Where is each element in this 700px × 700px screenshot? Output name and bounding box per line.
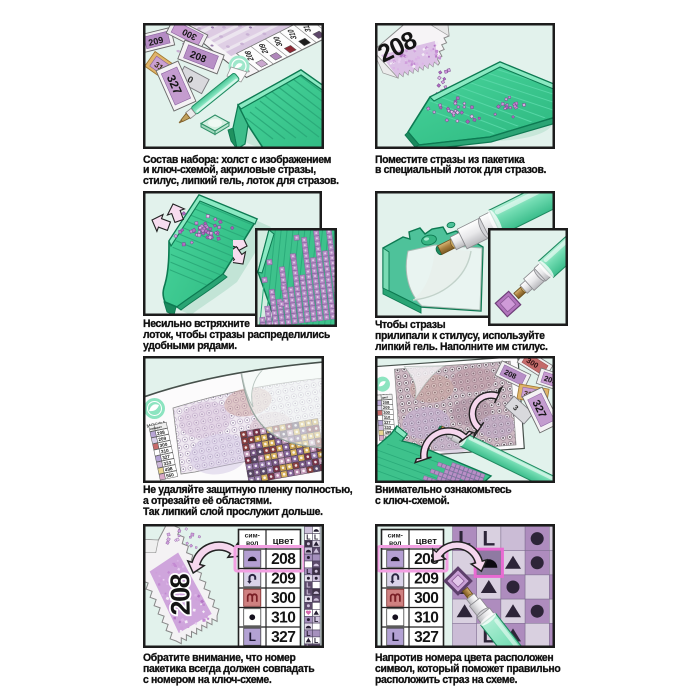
svg-text:L: L bbox=[392, 630, 399, 644]
svg-text:209: 209 bbox=[414, 571, 439, 588]
svg-text:310: 310 bbox=[271, 610, 295, 627]
svg-text:300: 300 bbox=[271, 590, 295, 607]
svg-text:327: 327 bbox=[414, 629, 438, 646]
svg-text:L: L bbox=[249, 630, 256, 644]
svg-text:209: 209 bbox=[271, 571, 296, 588]
svg-text:L: L bbox=[482, 528, 495, 551]
svg-text:сим-: сим- bbox=[388, 533, 403, 540]
svg-text:300: 300 bbox=[414, 590, 438, 607]
svg-text:208: 208 bbox=[271, 551, 296, 568]
svg-text:208: 208 bbox=[165, 573, 196, 616]
svg-text:310: 310 bbox=[414, 610, 438, 627]
svg-text:сим-: сим- bbox=[245, 533, 260, 540]
svg-text:327: 327 bbox=[271, 629, 295, 646]
